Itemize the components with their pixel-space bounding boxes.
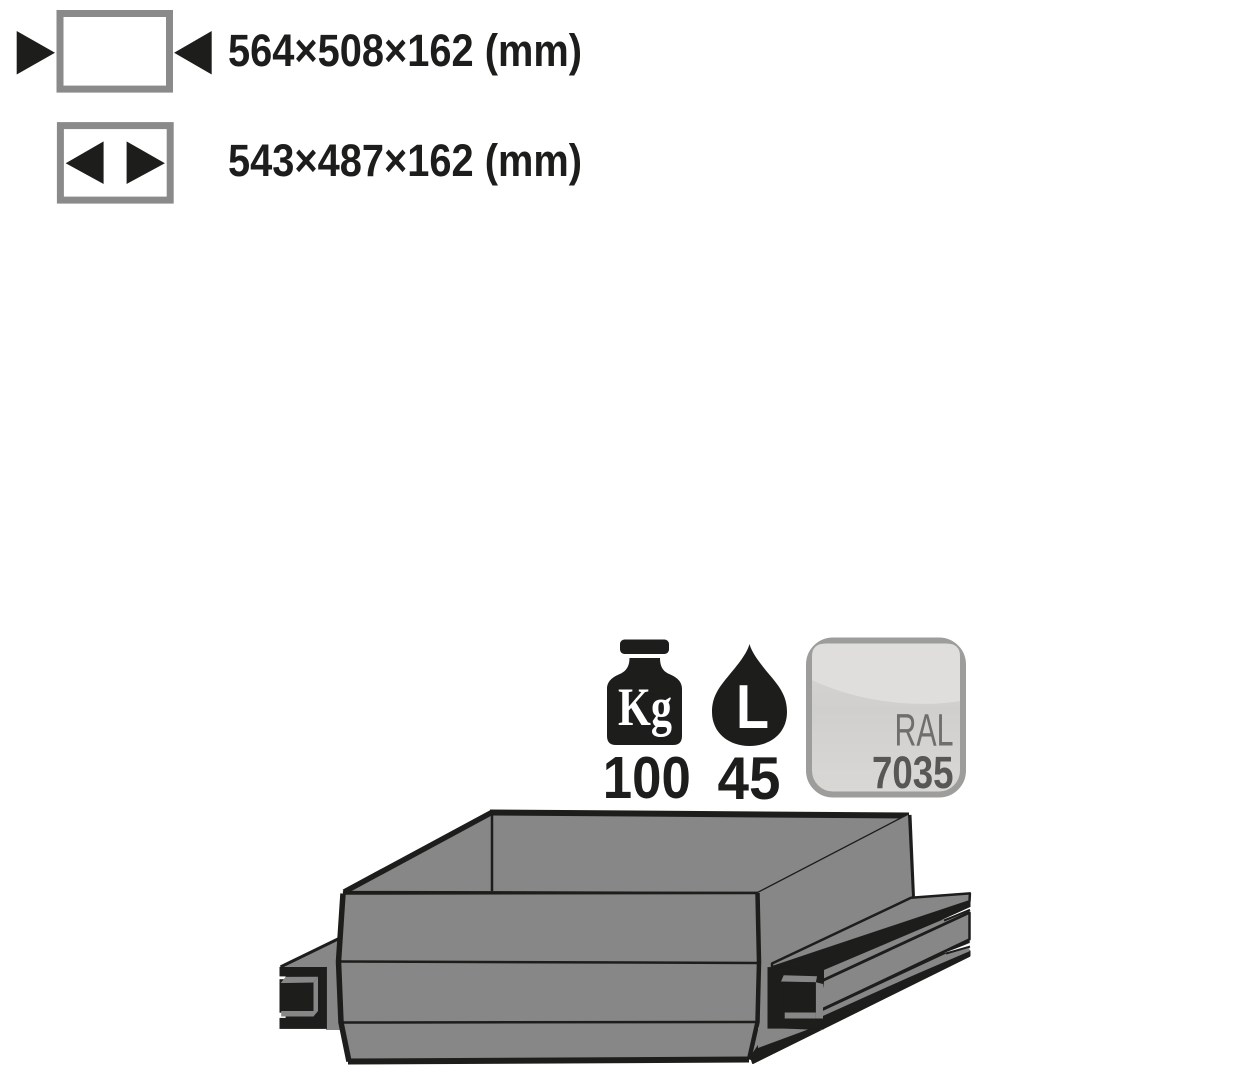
svg-text:564×508×162 (mm): 564×508×162 (mm) [228,25,582,76]
svg-text:Kg: Kg [618,677,672,737]
svg-text:100: 100 [603,745,691,811]
svg-text:7035: 7035 [872,747,954,798]
svg-text:543×487×162 (mm): 543×487×162 (mm) [228,135,582,186]
svg-text:L: L [736,673,769,742]
svg-text:45: 45 [718,745,781,812]
